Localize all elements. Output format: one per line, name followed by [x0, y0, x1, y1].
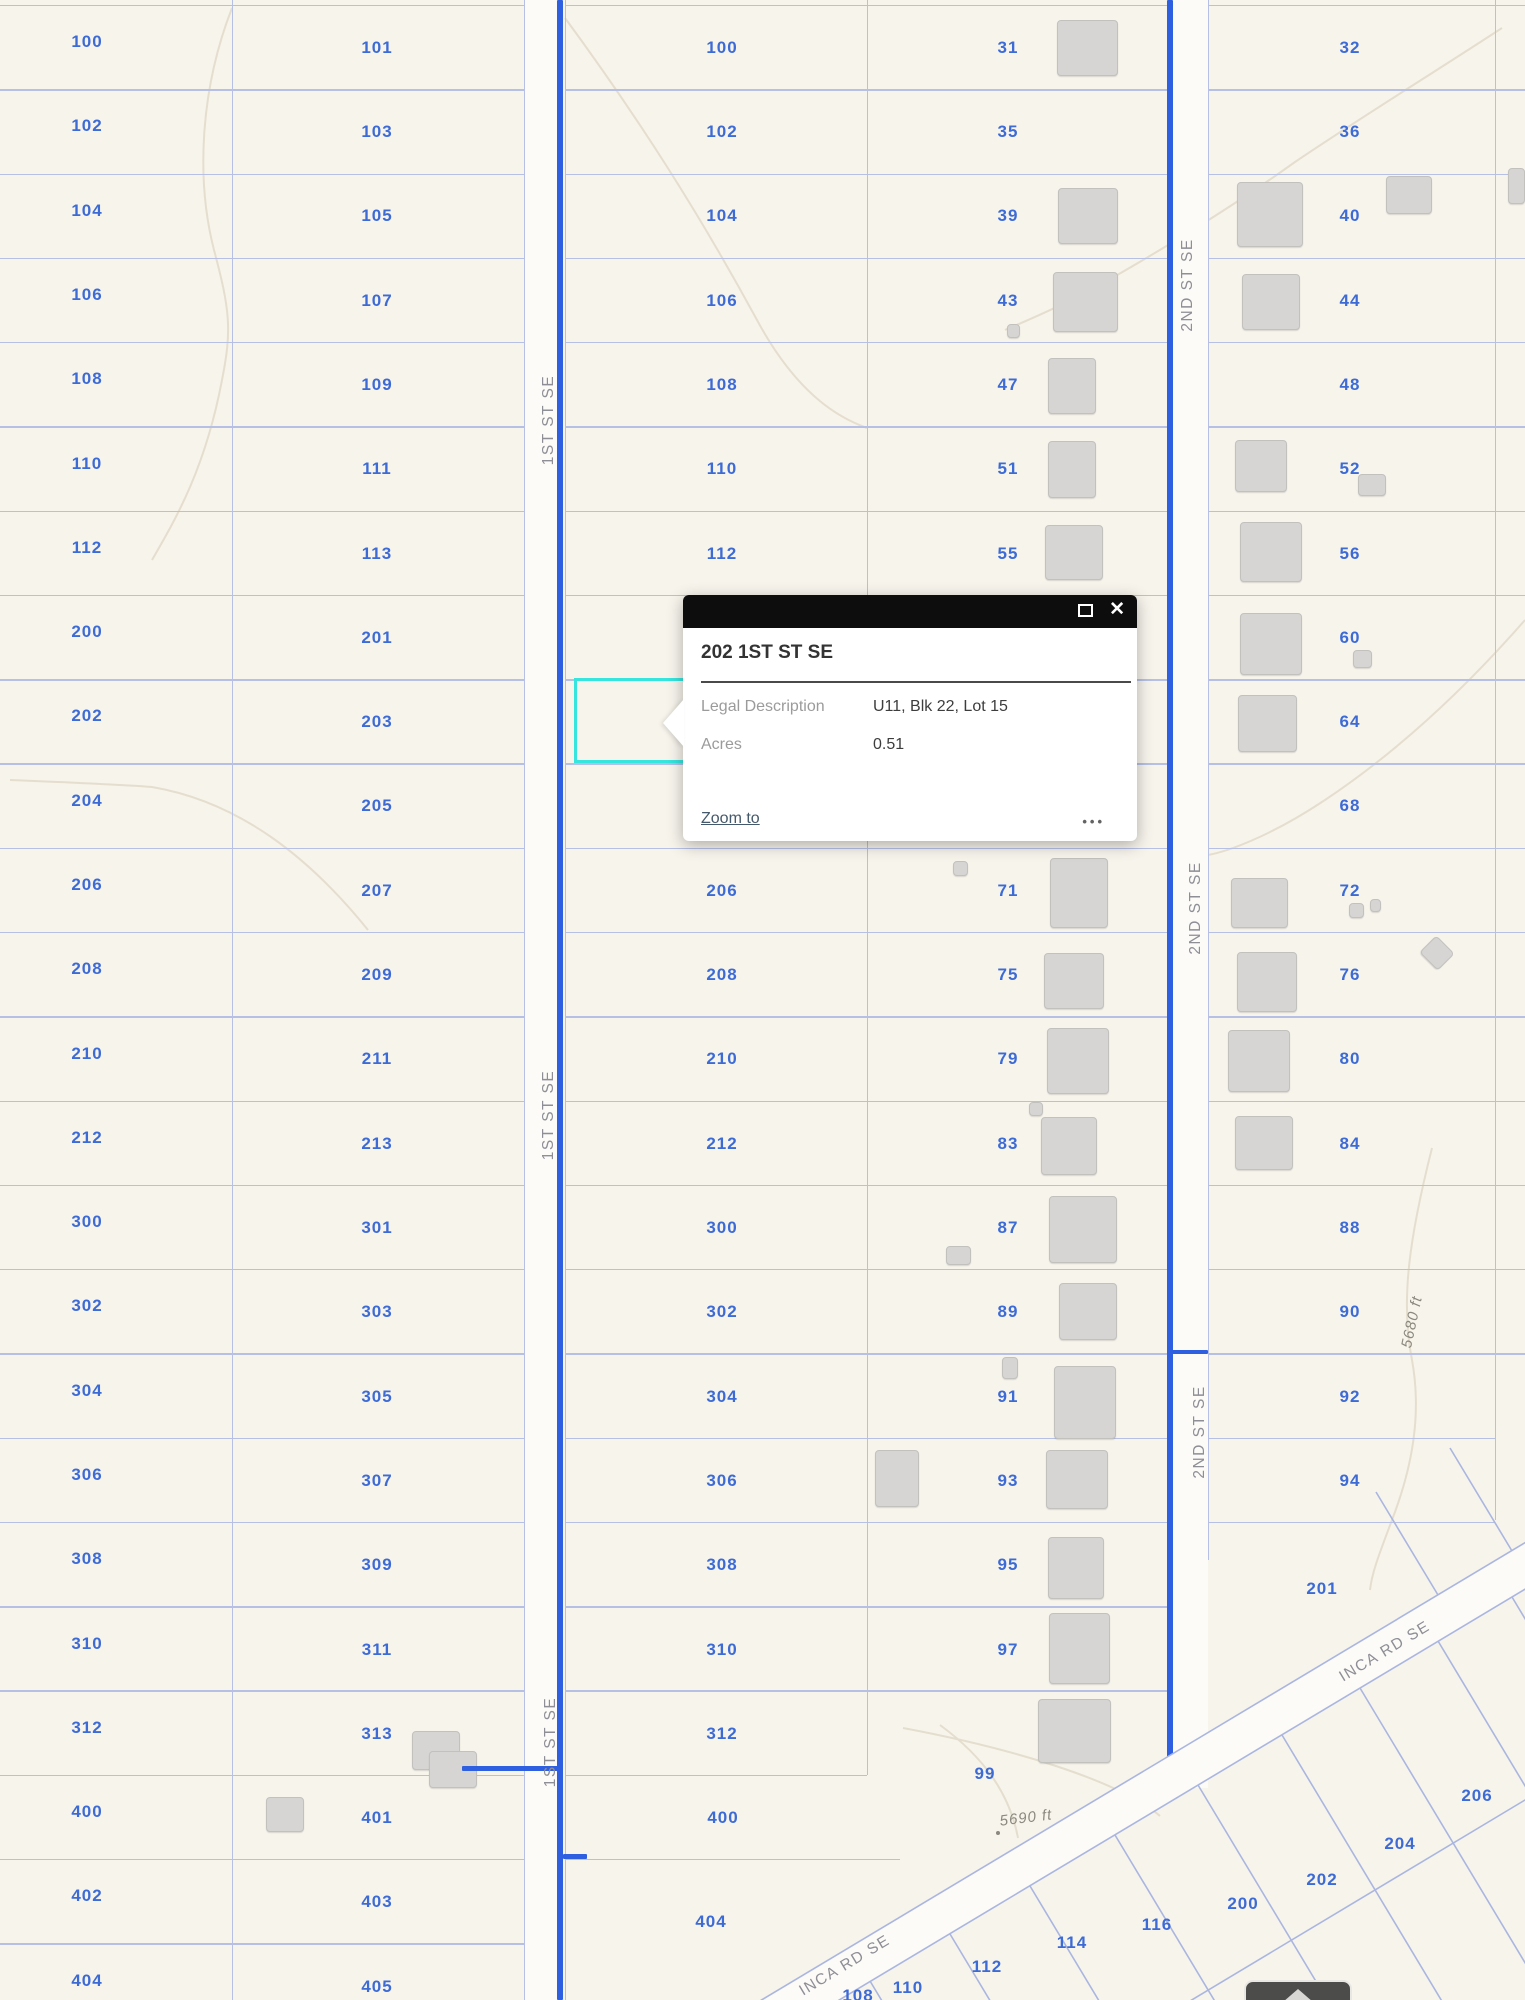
- parcel-label: 209: [361, 965, 392, 985]
- parcel-label: 303: [361, 1302, 392, 1322]
- parcel-label: 312: [71, 1718, 102, 1738]
- parcel-label: 44: [1340, 291, 1361, 311]
- parcel-label: 400: [71, 1802, 102, 1822]
- parcel-label: 104: [71, 201, 102, 221]
- parcel-label: 89: [998, 1302, 1019, 1322]
- parcel-label: 200: [71, 622, 102, 642]
- parcel-label: 302: [71, 1296, 102, 1316]
- street-label: 2ND ST SE: [1187, 861, 1205, 954]
- parcel-label: 93: [998, 1471, 1019, 1491]
- parcel-label: 51: [998, 459, 1019, 479]
- field-value: 0.51: [873, 735, 904, 755]
- parcel-label: 100: [71, 32, 102, 52]
- parcel-label: 40: [1340, 206, 1361, 226]
- street-label: 2ND ST SE: [1179, 238, 1197, 331]
- parcel-label: 47: [998, 375, 1019, 395]
- parcel-label: 114: [1057, 1933, 1087, 1953]
- popup-header: ✕: [683, 595, 1137, 628]
- parcel-label: 208: [706, 965, 737, 985]
- parcel-label: 301: [361, 1218, 392, 1238]
- parcel-label: 112: [972, 1957, 1002, 1977]
- parcel-label: 107: [361, 291, 392, 311]
- parcel-label: 207: [361, 881, 392, 901]
- parcel-label: 206: [706, 881, 737, 901]
- parcel-label: 110: [707, 459, 737, 479]
- parcel-label: 302: [706, 1302, 737, 1322]
- parcel-label: 108: [706, 375, 737, 395]
- parcel-label: 104: [706, 206, 737, 226]
- parcel-label: 213: [361, 1134, 392, 1154]
- parcel-label: 56: [1340, 544, 1361, 564]
- parcel-label: 110: [893, 1978, 923, 1998]
- parcel-label: 75: [998, 965, 1019, 985]
- parcel-label: 32: [1340, 38, 1361, 58]
- parcel-label: 203: [361, 712, 392, 732]
- elevation-point: [996, 1831, 1000, 1835]
- parcel-label: 210: [71, 1044, 102, 1064]
- parcel-label: 308: [71, 1549, 102, 1569]
- parcel-label: 300: [71, 1212, 102, 1232]
- parcel-label: 92: [1340, 1387, 1361, 1407]
- parcel-label: 111: [362, 459, 392, 479]
- street-label: INCA RD SE: [1336, 1618, 1433, 1686]
- parcel-label: 313: [361, 1724, 392, 1744]
- parcel-label: 116: [1142, 1915, 1172, 1935]
- parcel-label: 212: [71, 1128, 102, 1148]
- popup-divider: [701, 681, 1131, 683]
- parcel-label: 105: [361, 206, 392, 226]
- parcel-label: 103: [361, 122, 392, 142]
- parcel-label: 108: [71, 369, 102, 389]
- parcel-label: 404: [71, 1971, 102, 1991]
- parcel-label: 401: [361, 1808, 392, 1828]
- street-label: 1ST ST SE: [540, 375, 558, 465]
- parcel-label: 55: [998, 544, 1019, 564]
- chevron-up-icon: [1283, 1989, 1313, 2000]
- parcel-label: 312: [706, 1724, 737, 1744]
- parcel-label: 200: [1227, 1894, 1258, 1914]
- parcel-label: 52: [1340, 459, 1361, 479]
- parcel-label: 87: [998, 1218, 1019, 1238]
- parcel-label: 31: [998, 38, 1019, 58]
- elevation-label: 5690 ft: [999, 1806, 1054, 1829]
- feature-popup: ✕ 202 1ST ST SE Legal Description U11, B…: [683, 595, 1137, 841]
- parcel-label: 83: [998, 1134, 1019, 1154]
- parcel-label: 106: [71, 285, 102, 305]
- parcel-label: 202: [71, 706, 102, 726]
- parcel-label: 400: [707, 1808, 738, 1828]
- parcel-label: 201: [1306, 1579, 1337, 1599]
- elevation-label: 5680 ft: [1398, 1294, 1426, 1349]
- parcel-label: 112: [72, 538, 102, 558]
- parcel-label: 206: [71, 875, 102, 895]
- popup-field-acres: Acres 0.51: [701, 735, 1127, 755]
- parcel-label: 204: [1384, 1834, 1415, 1854]
- parcel-label: 304: [71, 1381, 102, 1401]
- parcel-label: 90: [1340, 1302, 1361, 1322]
- parcel-label: 76: [1340, 965, 1361, 985]
- street-label: 1ST ST SE: [540, 1070, 558, 1160]
- street-label: 1ST ST SE: [542, 1697, 560, 1787]
- parcel-label: 300: [706, 1218, 737, 1238]
- parcel-label: 309: [361, 1555, 392, 1575]
- parcel-label: 102: [71, 116, 102, 136]
- parcel-label: 405: [361, 1977, 392, 1997]
- parcel-label: 112: [707, 544, 737, 564]
- maximize-icon[interactable]: [1078, 604, 1093, 617]
- street-label: 2ND ST SE: [1191, 1385, 1209, 1478]
- parcel-label: 311: [362, 1640, 392, 1660]
- parcel-label: 206: [1461, 1786, 1492, 1806]
- parcel-label: 39: [998, 206, 1019, 226]
- parcel-label: 100: [706, 38, 737, 58]
- parcel-label: 80: [1340, 1049, 1361, 1069]
- parcel-label: 404: [695, 1912, 726, 1932]
- parcel-label: 308: [706, 1555, 737, 1575]
- popup-field-legal-description: Legal Description U11, Blk 22, Lot 15: [701, 697, 1127, 717]
- parcel-label: 36: [1340, 122, 1361, 142]
- parcel-label: 48: [1340, 375, 1361, 395]
- parcel-label: 109: [361, 375, 392, 395]
- parcel-label: 403: [361, 1892, 392, 1912]
- parcel-label: 68: [1340, 796, 1361, 816]
- parcel-label: 72: [1340, 881, 1361, 901]
- parcel-map-canvas[interactable]: 1001021041061081101122002022042062082102…: [0, 0, 1525, 2000]
- parcel-label: 210: [706, 1049, 737, 1069]
- parcel-label: 304: [706, 1387, 737, 1407]
- popup-pointer-tail: [663, 699, 684, 747]
- parcel-label: 108: [842, 1986, 873, 2000]
- parcel-label: 101: [361, 38, 392, 58]
- parcel-label: 95: [998, 1555, 1019, 1575]
- field-label: Legal Description: [701, 697, 873, 717]
- collapsed-panel-button[interactable]: [1244, 1980, 1352, 2000]
- parcel-label: 305: [361, 1387, 392, 1407]
- parcel-label: 64: [1340, 712, 1361, 732]
- parcel-label: 212: [706, 1134, 737, 1154]
- parcel-label: 94: [1340, 1471, 1361, 1491]
- parcel-label: 102: [706, 122, 737, 142]
- parcel-label: 310: [706, 1640, 737, 1660]
- parcel-label: 97: [998, 1640, 1019, 1660]
- parcel-label: 35: [998, 122, 1019, 142]
- parcel-label: 110: [72, 454, 102, 474]
- parcel-label: 60: [1340, 628, 1361, 648]
- parcel-label: 99: [975, 1764, 996, 1784]
- map-labels-layer: 1001021041061081101122002022042062082102…: [0, 0, 1525, 2000]
- parcel-label: 402: [71, 1886, 102, 1906]
- parcel-label: 106: [706, 291, 737, 311]
- parcel-label: 201: [361, 628, 392, 648]
- parcel-label: 79: [998, 1049, 1019, 1069]
- field-label: Acres: [701, 735, 873, 755]
- parcel-label: 204: [71, 791, 102, 811]
- field-value: U11, Blk 22, Lot 15: [873, 697, 1008, 717]
- parcel-label: 205: [361, 796, 392, 816]
- parcel-label: 113: [362, 544, 392, 564]
- parcel-label: 306: [71, 1465, 102, 1485]
- parcel-label: 208: [71, 959, 102, 979]
- parcel-label: 310: [71, 1634, 102, 1654]
- parcel-label: 306: [706, 1471, 737, 1491]
- parcel-label: 88: [1340, 1218, 1361, 1238]
- zoom-to-link[interactable]: Zoom to: [701, 810, 760, 828]
- parcel-label: 43: [998, 291, 1019, 311]
- parcel-label: 84: [1340, 1134, 1361, 1154]
- parcel-label: 91: [998, 1387, 1019, 1407]
- more-options-icon[interactable]: •••: [1082, 814, 1105, 829]
- parcel-label: 71: [998, 881, 1019, 901]
- parcel-label: 307: [361, 1471, 392, 1491]
- close-icon[interactable]: ✕: [1109, 598, 1125, 621]
- parcel-label: 211: [362, 1049, 392, 1069]
- popup-title: 202 1ST ST SE: [701, 642, 833, 664]
- parcel-label: 202: [1306, 1870, 1337, 1890]
